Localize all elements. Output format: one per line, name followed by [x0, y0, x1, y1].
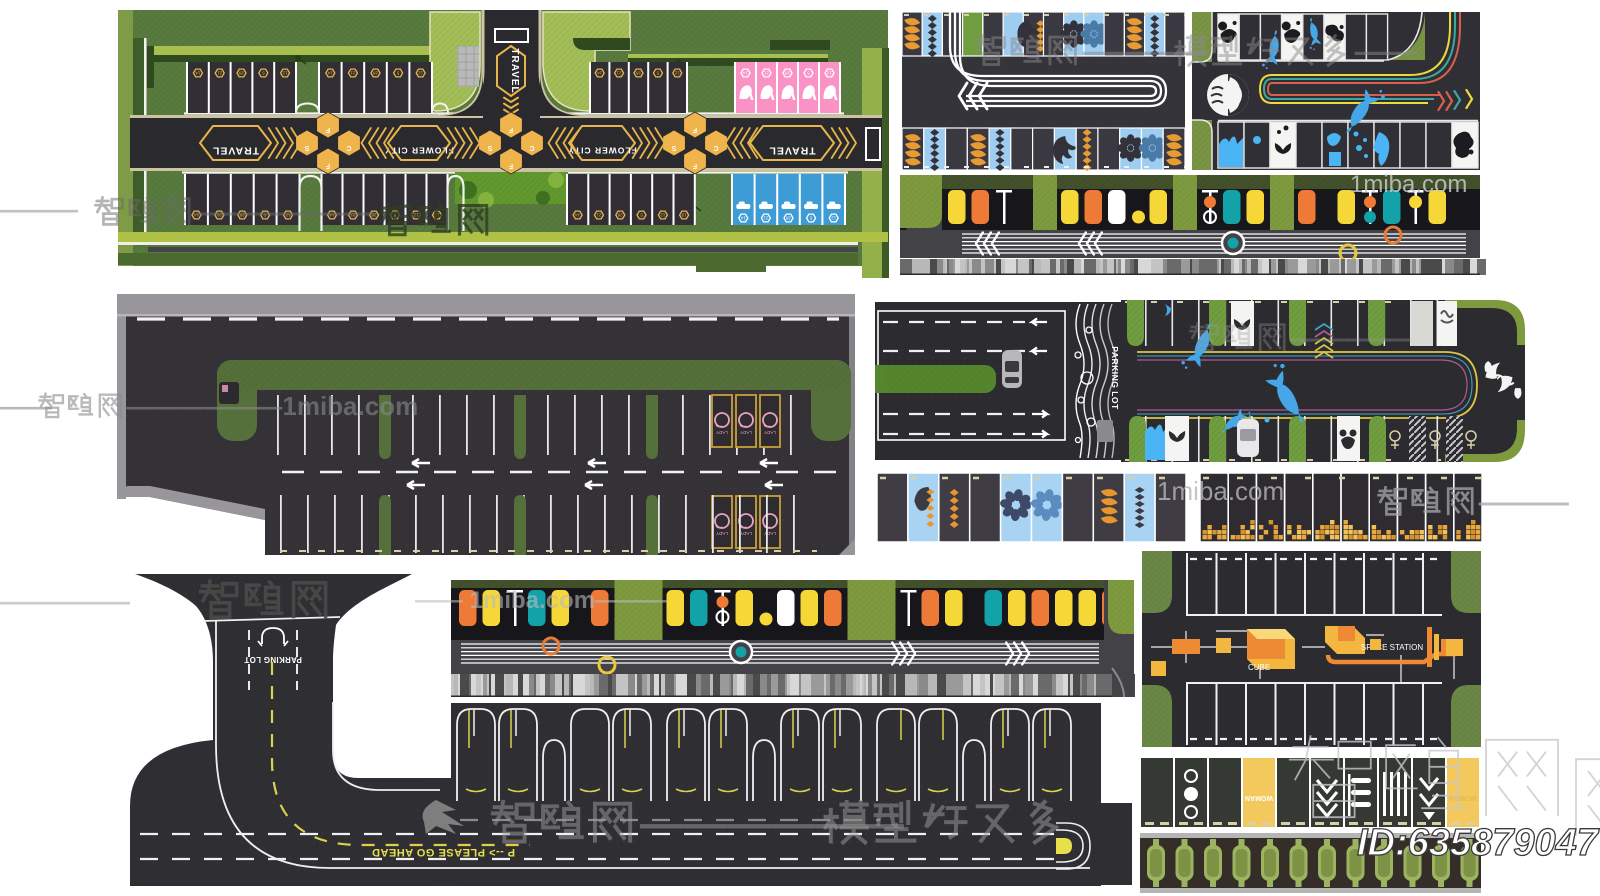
svg-text:12: 12 — [674, 70, 680, 75]
svg-text:12: 12 — [418, 70, 424, 75]
svg-text:—— 1miba.com———: —— 1miba.com——— — [415, 587, 667, 614]
svg-text:12: 12 — [413, 212, 419, 217]
svg-text:LADY: LADY — [764, 531, 776, 536]
svg-text:12: 12 — [827, 70, 833, 75]
svg-text:CUBE: CUBE — [1248, 663, 1270, 672]
svg-text:28: 28 — [617, 212, 623, 217]
svg-text:LADY: LADY — [716, 430, 728, 435]
svg-text:14: 14 — [597, 70, 603, 75]
svg-text:LADY: LADY — [716, 531, 728, 536]
svg-text:14: 14 — [575, 212, 581, 217]
svg-text:F: F — [508, 162, 513, 169]
svg-text:WOMAN: WOMAN — [1245, 794, 1273, 801]
svg-text:LADY: LADY — [740, 531, 752, 536]
svg-text:19: 19 — [681, 212, 687, 217]
svg-text:P --> PLEASE GO AHEAD: P --> PLEASE GO AHEAD — [372, 846, 515, 858]
svg-text:14: 14 — [195, 70, 201, 75]
svg-text:28: 28 — [785, 70, 791, 75]
svg-text:14: 14 — [327, 70, 333, 75]
svg-text:————: ———— — [1291, 322, 1411, 355]
svg-text:14: 14 — [743, 70, 749, 75]
svg-text:LADY: LADY — [764, 430, 776, 435]
svg-text:—————: ————— — [0, 586, 130, 616]
svg-text:——————1miba.com: ——————1miba.com — [126, 391, 418, 421]
svg-text:ID:635879047: ID:635879047 — [1357, 822, 1600, 864]
svg-text:F: F — [325, 162, 330, 169]
svg-text:28: 28 — [373, 70, 379, 75]
svg-text:28: 28 — [786, 215, 792, 220]
svg-text:C: C — [346, 144, 351, 151]
svg-text:TRAVEL: TRAVEL — [212, 145, 259, 157]
svg-text:21: 21 — [596, 212, 602, 217]
svg-text:S: S — [304, 144, 309, 151]
svg-text:28: 28 — [636, 70, 642, 75]
svg-text:12: 12 — [660, 212, 666, 217]
svg-text:TRAVEL: TRAVEL — [509, 48, 520, 93]
svg-text:———: ——— — [0, 194, 78, 224]
svg-text:F: F — [325, 126, 330, 133]
svg-text:FLOWER CITY: FLOWER CITY — [384, 146, 454, 156]
svg-text:——: —— — [1355, 33, 1419, 69]
svg-text:1miba.com: 1miba.com — [1350, 171, 1467, 198]
svg-text:28: 28 — [239, 70, 245, 75]
svg-text:14: 14 — [740, 215, 746, 220]
svg-text:12: 12 — [831, 215, 837, 220]
svg-text:S: S — [671, 144, 676, 151]
svg-text:F: F — [508, 126, 513, 133]
svg-text:C: C — [713, 144, 718, 151]
svg-text:12: 12 — [282, 70, 288, 75]
svg-text:PARKING LOT: PARKING LOT — [1110, 346, 1120, 410]
svg-text:1miba.com: 1miba.com — [1157, 476, 1284, 506]
svg-text:———: ——— — [1479, 486, 1569, 519]
svg-text:F: F — [692, 126, 697, 133]
svg-text:——————: —————— — [196, 196, 376, 229]
svg-text:21: 21 — [616, 70, 622, 75]
svg-text:21: 21 — [763, 215, 769, 220]
svg-text:S: S — [487, 144, 492, 151]
svg-text:21: 21 — [350, 70, 356, 75]
svg-text:LADY: LADY — [740, 430, 752, 435]
svg-text:21: 21 — [764, 70, 770, 75]
svg-text:21: 21 — [217, 70, 223, 75]
svg-text:TRAVEL: TRAVEL — [768, 145, 815, 157]
svg-text:F: F — [692, 162, 697, 169]
svg-text:C: C — [529, 144, 534, 151]
